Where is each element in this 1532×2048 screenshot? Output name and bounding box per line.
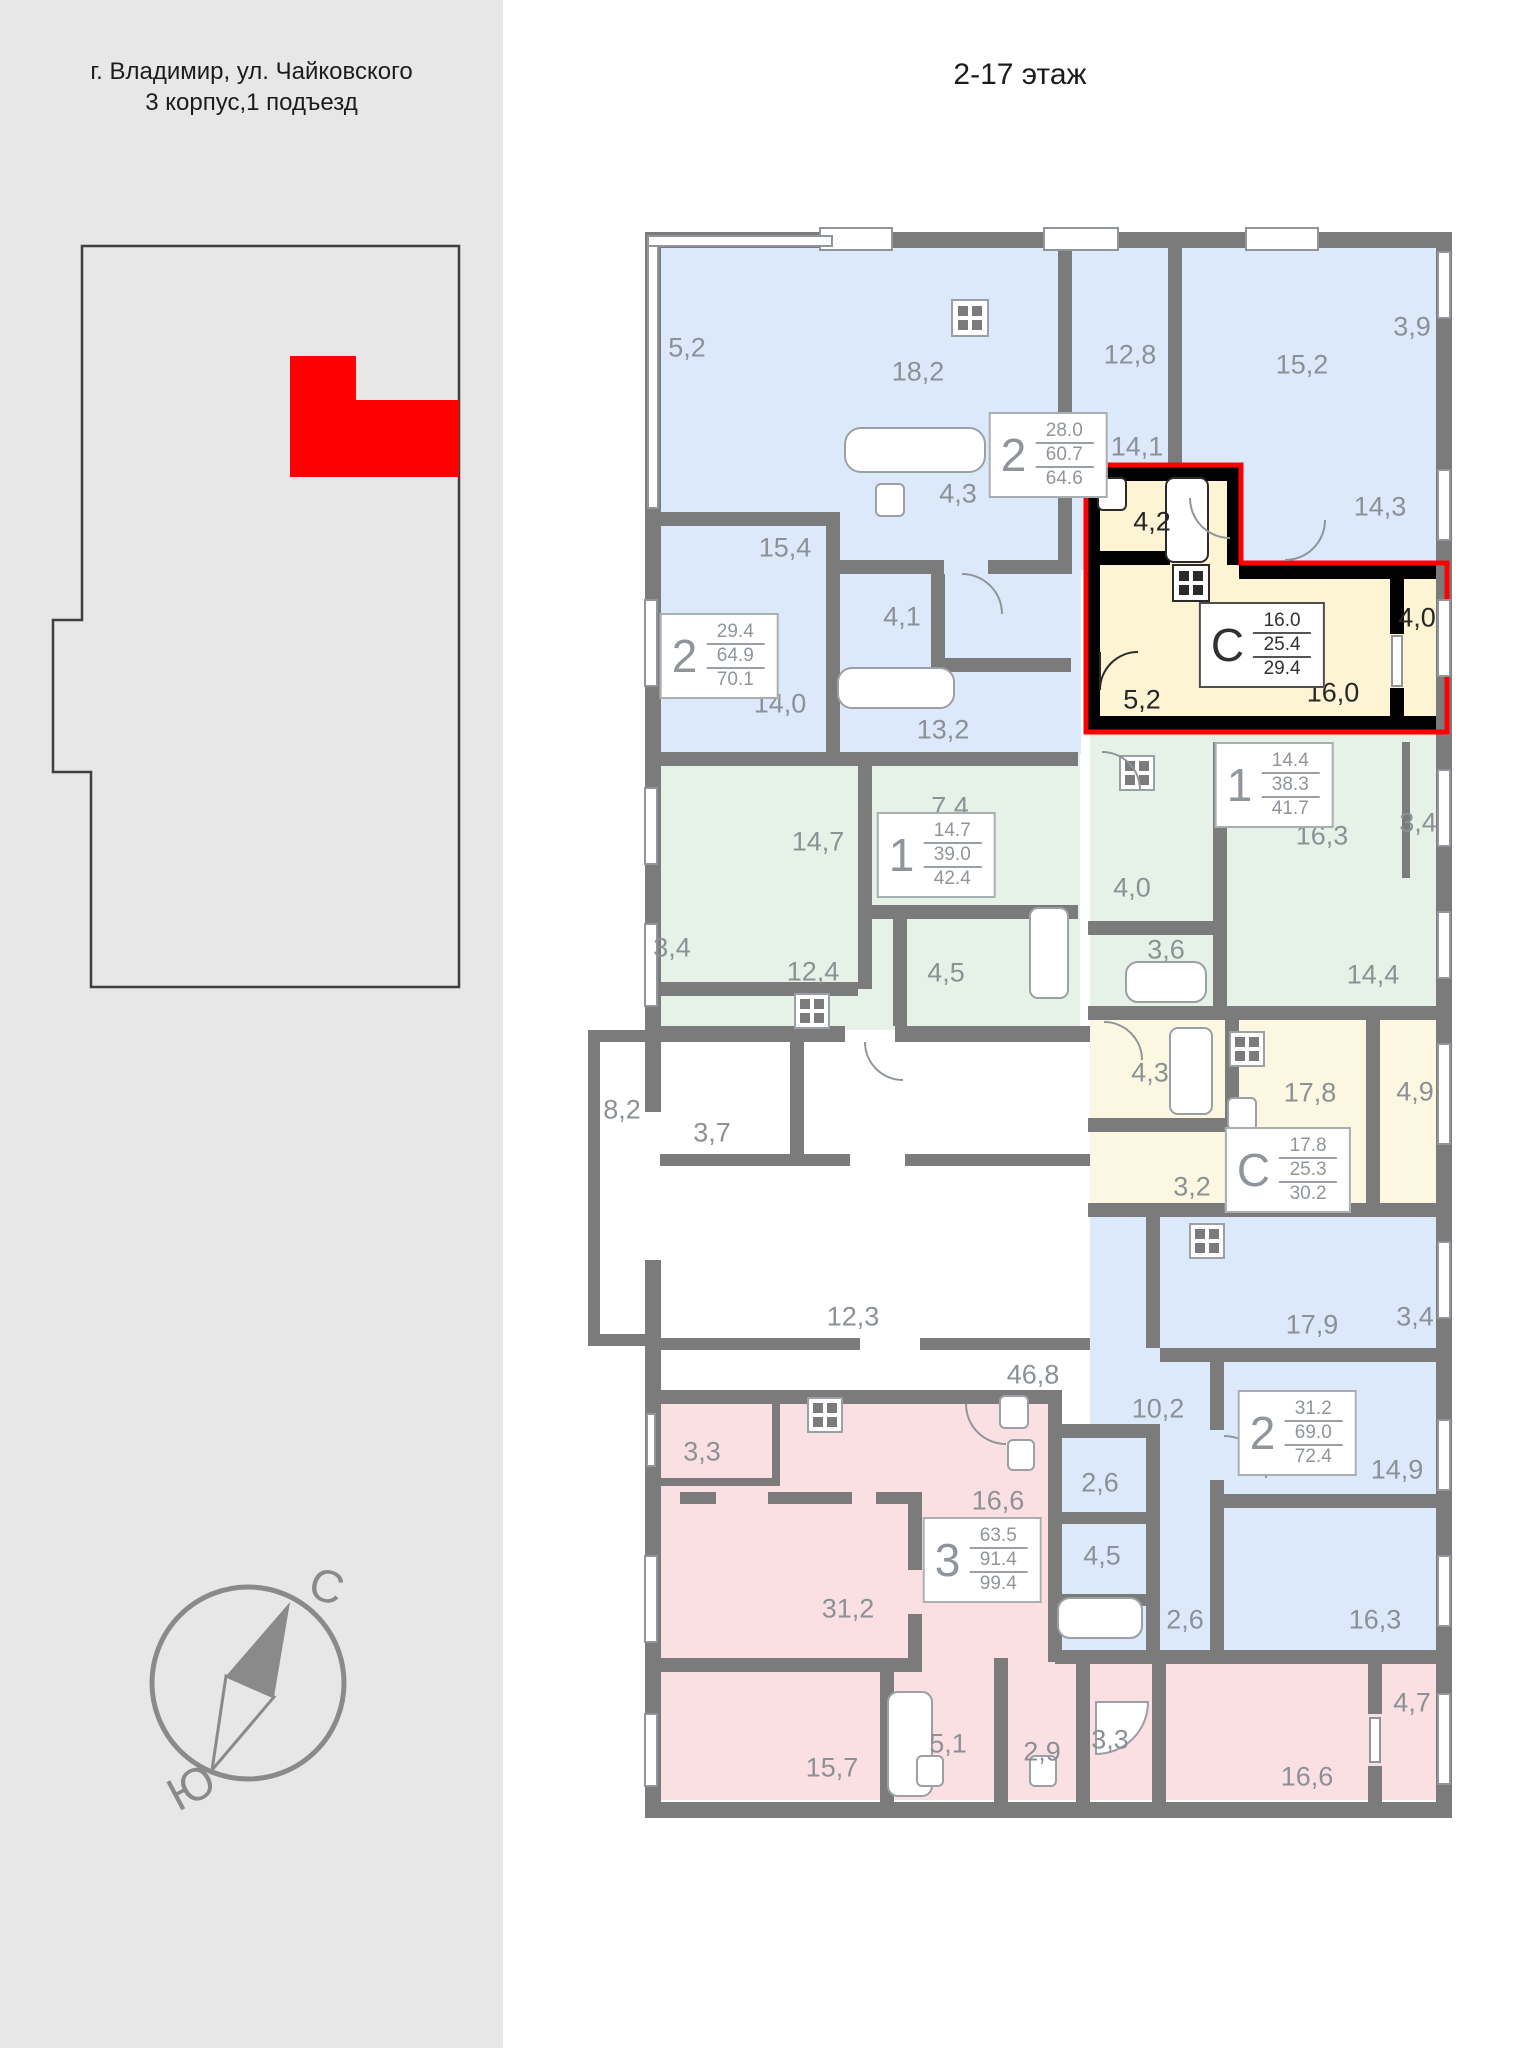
total-area: 41.7 — [1261, 796, 1319, 820]
apartment-area: 25.3 — [1279, 1157, 1337, 1181]
room-area-label: 3,7 — [693, 1118, 731, 1149]
room-area-label: 14,4 — [1347, 960, 1400, 991]
room-area-label: 14,3 — [1354, 492, 1407, 523]
room-area-label: 16,6 — [1281, 1762, 1334, 1793]
room-area-label: 12,4 — [787, 957, 840, 988]
room-area-label: 46,8 — [1007, 1360, 1060, 1391]
room-area-label: 4,0 — [1398, 603, 1436, 634]
apartment-type: 3 — [935, 1537, 961, 1583]
room-area-label: 15,7 — [806, 1753, 859, 1784]
living-area: 31.2 — [1284, 1398, 1342, 1420]
room-area-label: 2,9 — [1023, 1737, 1061, 1768]
room-area-label: 3,4 — [1396, 1302, 1434, 1333]
room-area-label: 3,4 — [1399, 808, 1437, 839]
room-area-label: 5,1 — [929, 1729, 967, 1760]
total-area: 42.4 — [923, 866, 981, 890]
apartment-info-badge: 1 14.7 39.0 42.4 — [877, 812, 996, 898]
apartment-info-badge: 1 14.4 38.3 41.7 — [1215, 742, 1334, 828]
total-area: 99.4 — [969, 1571, 1027, 1595]
apartment-area: 25.4 — [1253, 632, 1311, 656]
apartment-type: 2 — [1001, 432, 1027, 478]
apartment-info-badge: 2 29.4 64.9 70.1 — [660, 613, 779, 699]
room-area-label: 31,2 — [822, 1594, 875, 1625]
apartment-area: 64.9 — [706, 643, 764, 667]
living-area: 29.4 — [706, 621, 764, 643]
room-area-label: 4,0 — [1113, 873, 1151, 904]
room-area-label: 17,8 — [1284, 1078, 1337, 1109]
apartment-area: 69.0 — [1284, 1420, 1342, 1444]
apartment-type: С — [1211, 622, 1244, 668]
living-area: 14.7 — [923, 820, 981, 842]
room-area-label: 12,8 — [1104, 340, 1157, 371]
room-area-label: 3,9 — [1393, 312, 1431, 343]
total-area: 72.4 — [1284, 1444, 1342, 1468]
room-area-label: 4,3 — [1131, 1058, 1169, 1089]
apartment-area: 91.4 — [969, 1547, 1027, 1571]
living-area: 28.0 — [1035, 420, 1093, 442]
floor-plan-svg — [0, 0, 1532, 2048]
room-area-label: 4,3 — [939, 479, 977, 510]
apartment-info-badge-highlighted[interactable]: С 16.0 25.4 29.4 — [1199, 602, 1325, 688]
room-area-label: 17,9 — [1286, 1310, 1339, 1341]
room-area-label: 2,6 — [1081, 1468, 1119, 1499]
total-area: 70.1 — [706, 667, 764, 691]
living-area: 63.5 — [969, 1525, 1027, 1547]
room-area-label: 18,2 — [892, 357, 945, 388]
living-area: 17.8 — [1279, 1135, 1337, 1157]
apartment-type: С — [1237, 1147, 1270, 1193]
living-area: 16.0 — [1253, 610, 1311, 632]
total-area: 29.4 — [1253, 656, 1311, 680]
room-area-label: 14,7 — [792, 827, 845, 858]
room-area-label: 12,3 — [827, 1302, 880, 1333]
apartment-area: 38.3 — [1261, 772, 1319, 796]
room-area-label: 4,5 — [927, 958, 965, 989]
apartment-area: 60.7 — [1035, 442, 1093, 466]
room-area-label: 15,4 — [759, 533, 812, 564]
room-area-label: 15,2 — [1276, 350, 1329, 381]
room-area-label: 4,9 — [1396, 1077, 1434, 1108]
room-area-label: 4,7 — [1393, 1688, 1431, 1719]
room-area-label: 16,6 — [972, 1486, 1025, 1517]
living-area: 14.4 — [1261, 750, 1319, 772]
room-area-label: 3,4 — [653, 933, 691, 964]
room-area-label: 10,2 — [1132, 1394, 1185, 1425]
room-area-label: 4,5 — [1083, 1541, 1121, 1572]
room-area-label: 3,2 — [1173, 1172, 1211, 1203]
room-area-label: 8,2 — [603, 1095, 641, 1126]
total-area: 64.6 — [1035, 466, 1093, 490]
apartment-info-badge: 2 28.0 60.7 64.6 — [989, 412, 1108, 498]
room-area-label: 13,2 — [917, 715, 970, 746]
room-area-label: 4,1 — [883, 602, 921, 633]
apartment-info-badge: 2 31.2 69.0 72.4 — [1238, 1390, 1357, 1476]
apartment-type: 2 — [672, 633, 698, 679]
apartment-type: 1 — [1227, 762, 1253, 808]
room-area-label: 2,6 — [1166, 1605, 1204, 1636]
apartment-info-badge: С 17.8 25.3 30.2 — [1225, 1127, 1351, 1213]
apartment-type: 1 — [889, 832, 915, 878]
room-area-label: 14,1 — [1111, 432, 1164, 463]
room-area-label: 14,9 — [1371, 1455, 1424, 1486]
room-area-label: 3,3 — [683, 1437, 721, 1468]
room-area-label: 4,2 — [1133, 507, 1171, 538]
room-area-label: 16,3 — [1349, 1605, 1402, 1636]
room-area-label: 3,6 — [1147, 935, 1185, 966]
room-area-label: 3,3 — [1091, 1725, 1129, 1756]
apartment-area: 39.0 — [923, 842, 981, 866]
room-area-label: 5,2 — [668, 333, 706, 364]
room-area-label: 5,2 — [1123, 685, 1161, 716]
apartment-info-badge: 3 63.5 91.4 99.4 — [923, 1517, 1042, 1603]
apartment-type: 2 — [1250, 1410, 1276, 1456]
total-area: 30.2 — [1279, 1181, 1337, 1205]
